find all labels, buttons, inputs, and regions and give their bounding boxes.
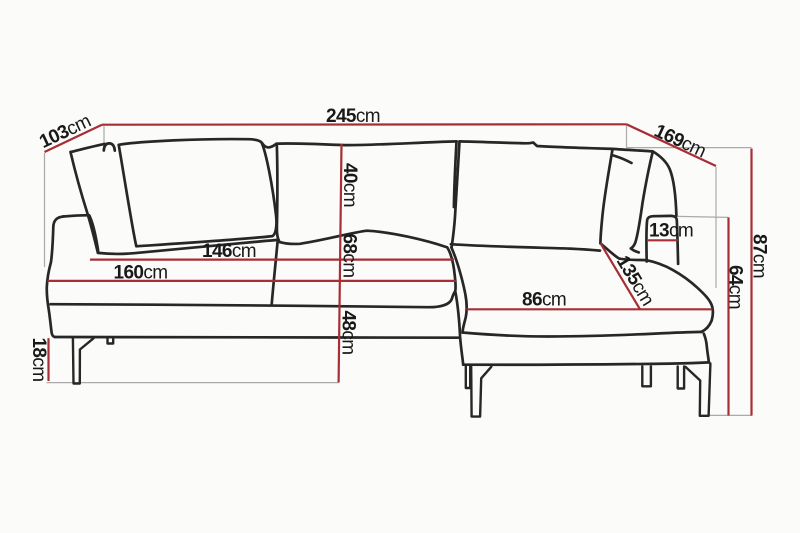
svg-text:13cm: 13cm [649,221,693,242]
svg-text:40cm: 40cm [339,163,360,207]
svg-text:18cm: 18cm [28,337,49,381]
svg-text:146cm: 146cm [202,241,256,262]
svg-text:86cm: 86cm [522,290,566,311]
svg-text:103cm: 103cm [36,111,94,153]
svg-text:48cm: 48cm [338,310,359,354]
svg-text:245cm: 245cm [326,106,380,127]
svg-text:64cm: 64cm [724,265,745,309]
svg-text:68cm: 68cm [339,233,360,277]
svg-text:160cm: 160cm [114,263,168,284]
svg-text:87cm: 87cm [748,234,769,278]
